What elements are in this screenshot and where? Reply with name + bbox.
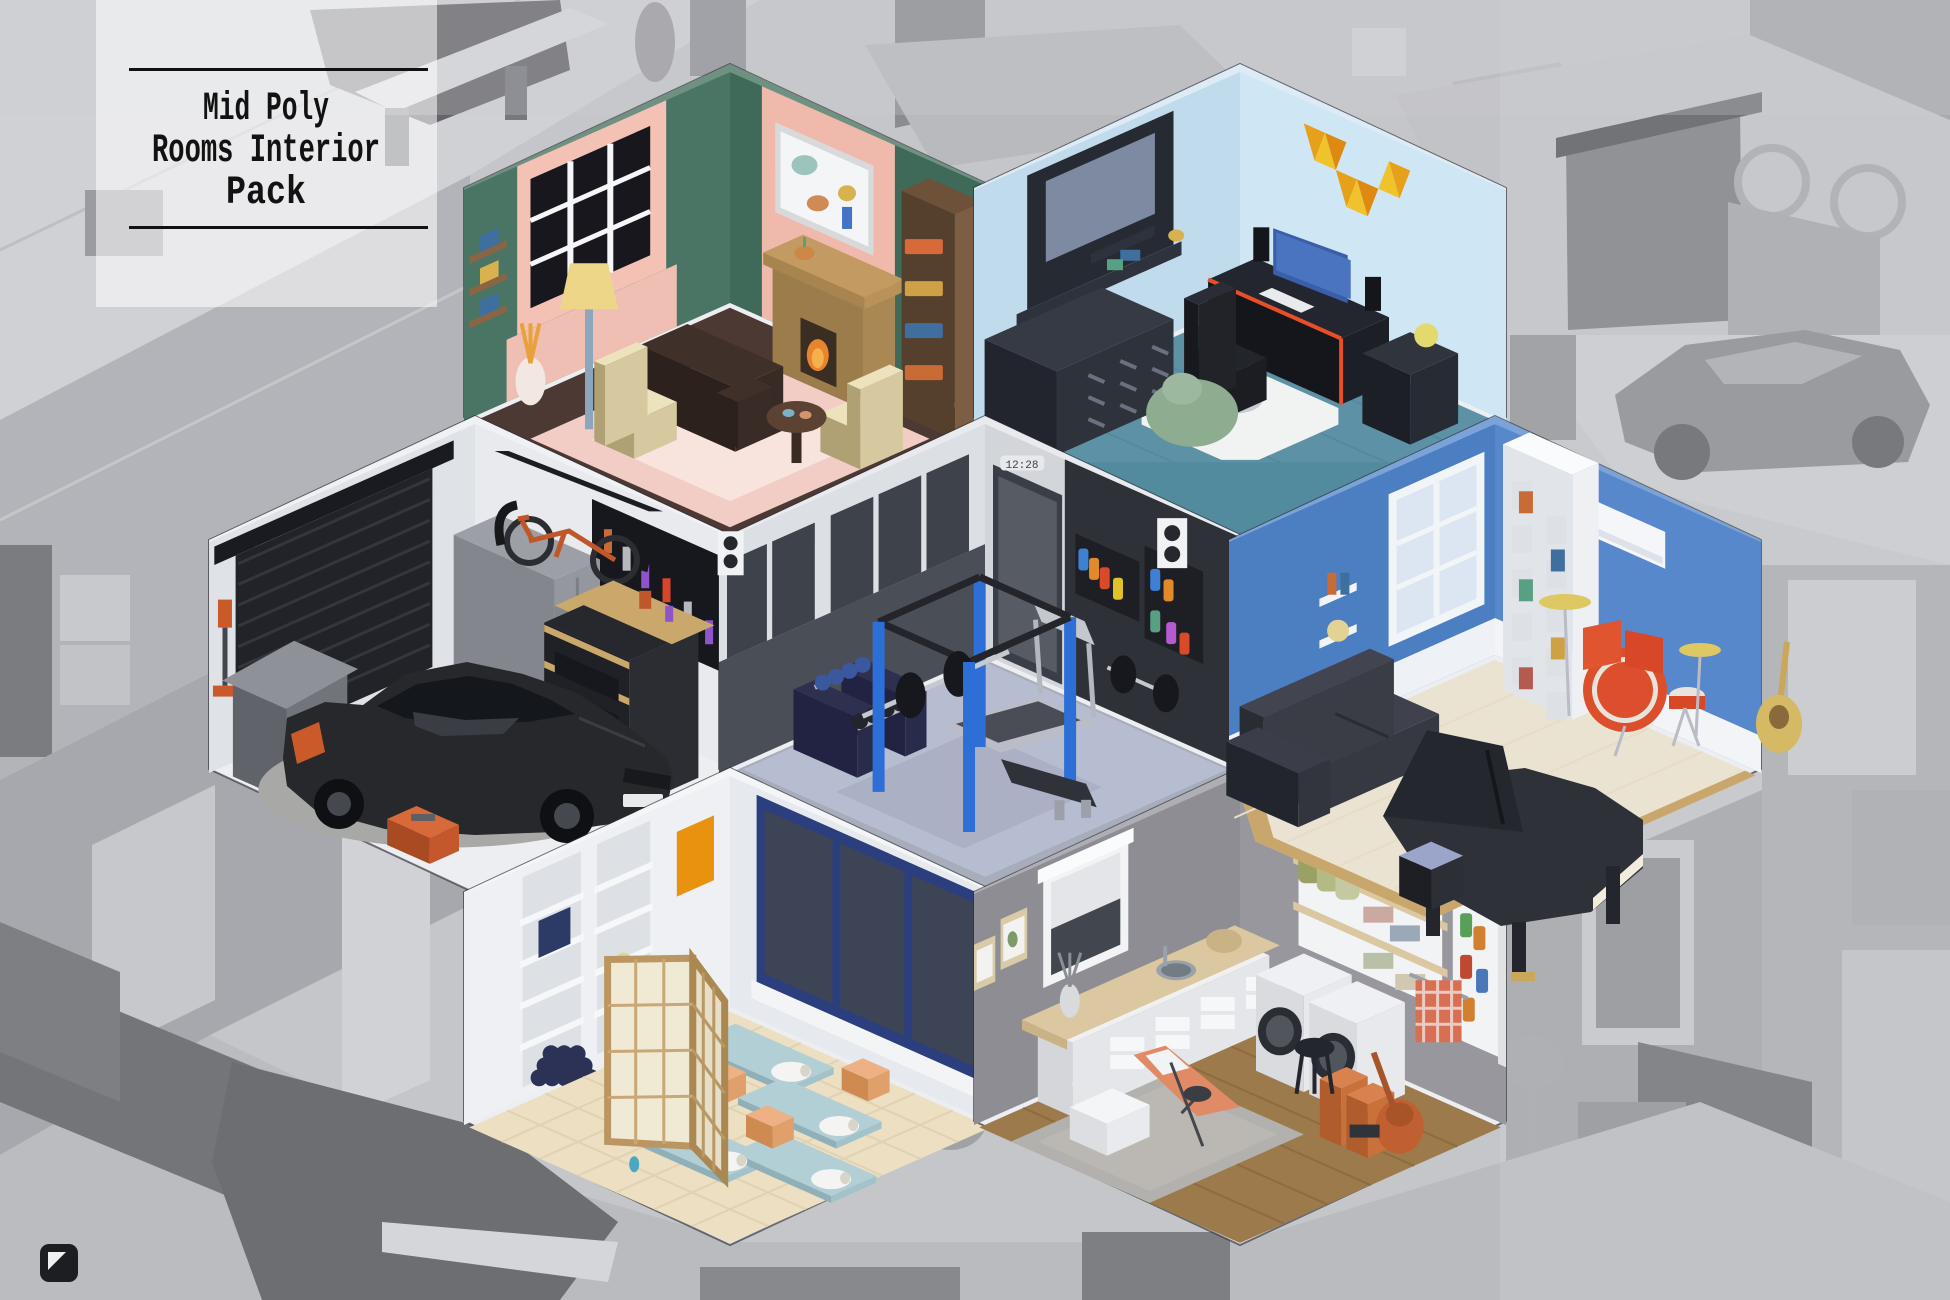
svg-text:Rooms Interior: Rooms Interior <box>152 129 380 174</box>
svg-text:Mid Poly: Mid Poly <box>203 87 329 132</box>
svg-text:12:28: 12:28 <box>1005 460 1038 472</box>
svg-text:Pack: Pack <box>226 171 306 216</box>
